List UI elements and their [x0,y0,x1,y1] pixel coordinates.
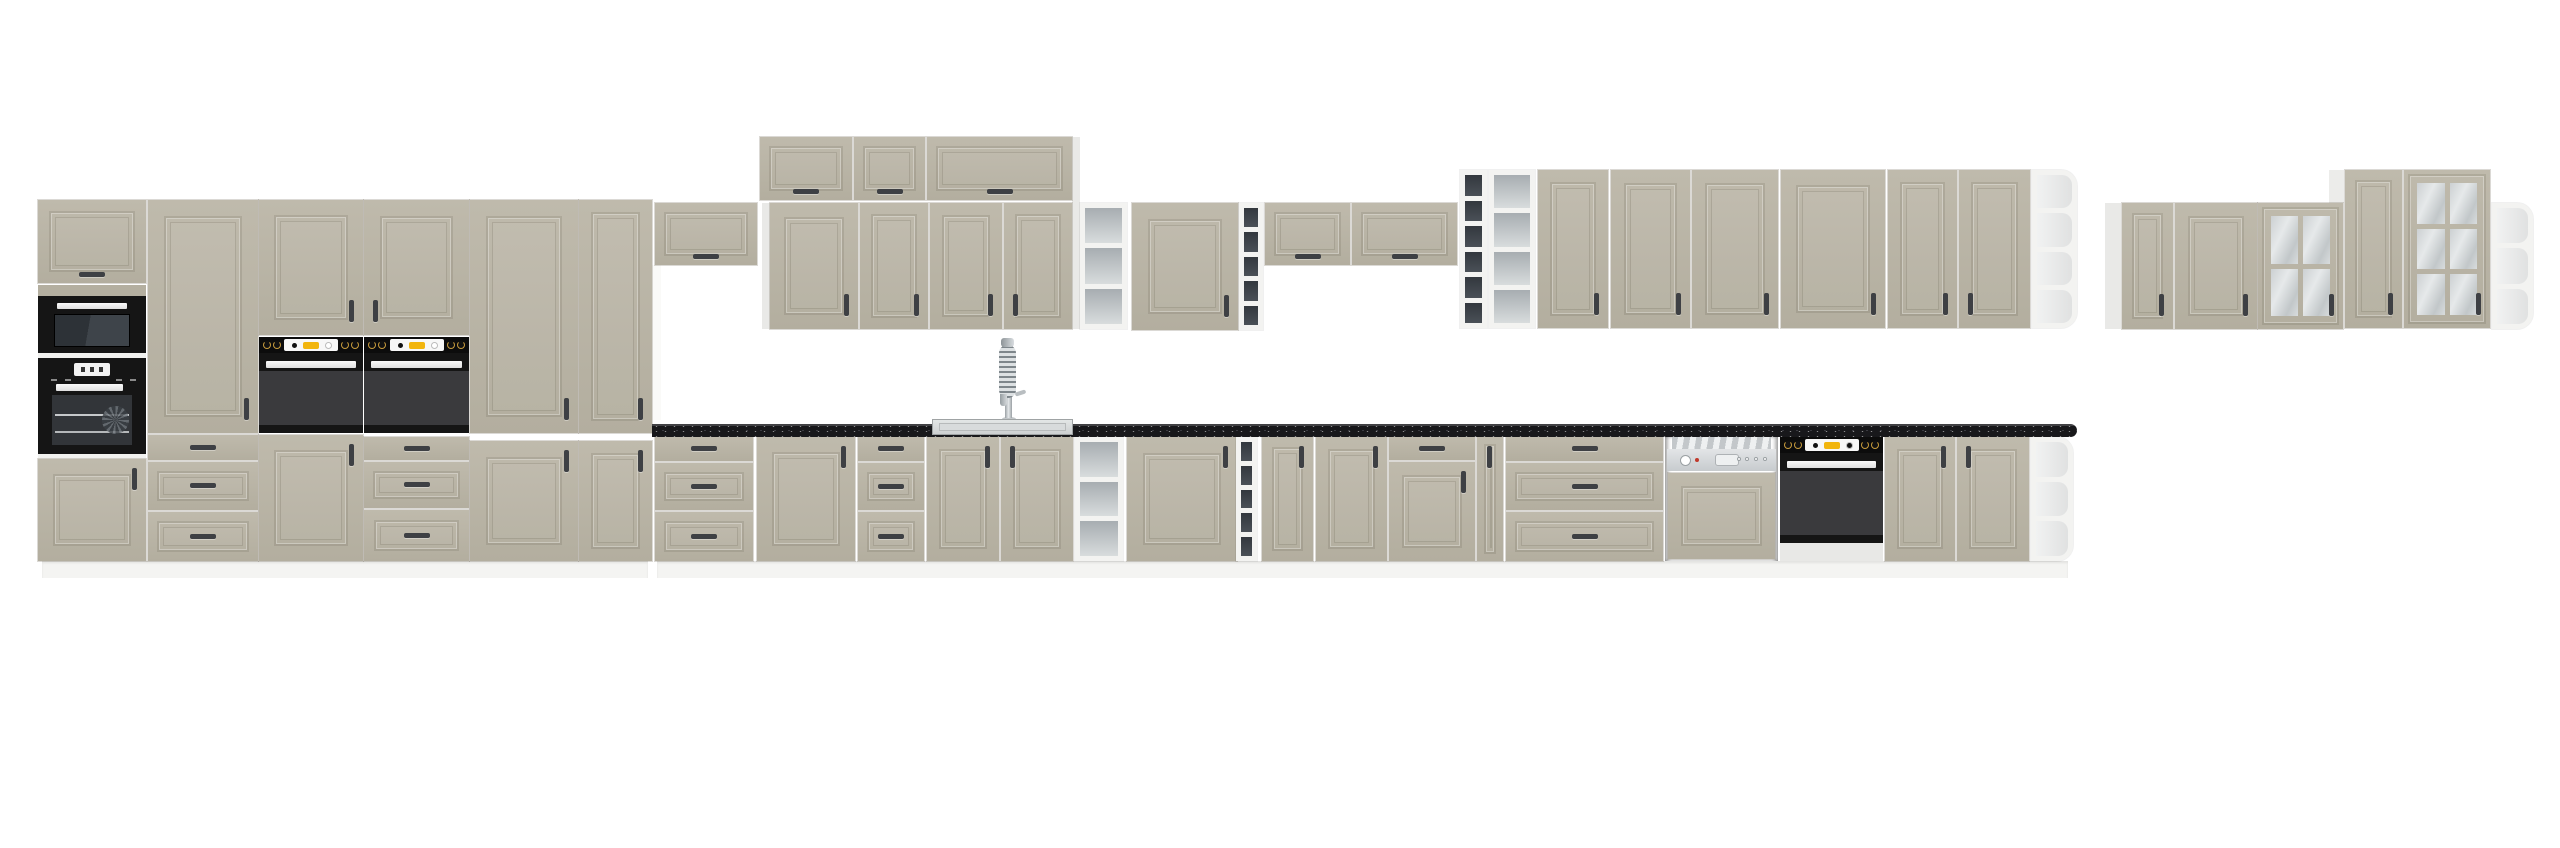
door-frame-inner [597,459,634,543]
base-drawer-over-door-door [1389,462,1475,561]
handle [1392,254,1418,259]
wall-bridge-cabinet-3 [1352,203,1457,265]
tall-b-drawer2 [148,462,258,510]
handle [404,533,430,538]
handle [190,483,216,488]
door-frame-inner [1802,191,1864,307]
base-drawers-1-drawer-3 [655,512,753,561]
handle [1013,294,1018,316]
right-wall-door-2 [2175,203,2257,329]
oven-display-panel [390,339,444,351]
handle [373,300,378,322]
door-frame-inner [945,455,981,543]
oven-knob [341,341,349,349]
door-frame-inner [2194,222,2238,310]
oven-icon-mark [65,379,71,381]
oven-handle-bar [1787,461,1876,468]
handle [349,300,354,322]
handle [190,534,216,539]
oven-knob [263,341,271,349]
handle [1572,446,1598,451]
door-frame-inner [942,152,1057,185]
oven-display-yellow [1824,442,1840,449]
dishwasher-power-button [1680,455,1691,466]
base-open-shelf-1-compartment-2 [1080,482,1118,517]
glass-pane [2303,216,2330,264]
wall-door-6 [1538,170,1608,328]
under-counter-oven [1780,437,1883,543]
side-panel-stack-right [1072,137,1080,329]
base-door-2 [1127,437,1237,561]
right-wall-tall-door [2345,170,2402,328]
door-frame-inner [1977,188,2012,310]
right-glass-cabinet-2 [2404,170,2490,328]
faucet-spring-coil [999,345,1016,398]
door-frame-inner [492,463,556,539]
base-door-3 [1262,437,1313,561]
tall-b-drawer1 [148,435,258,460]
tall-d-oven [364,337,469,433]
faucet-spout-tip [1000,394,1007,406]
handle [1299,446,1304,468]
wall-wine-shelf-2-compartment-6 [1465,303,1482,324]
handle [564,450,569,472]
door-frame-inner [869,152,910,185]
handle [1224,295,1229,317]
handle [564,398,569,420]
door-frame-inner [1687,492,1755,540]
handle [988,294,993,316]
wall-top-stack-2 [854,137,925,200]
sink [932,419,1073,435]
door-frame-inner [1408,481,1456,542]
door-frame-inner [492,222,556,411]
wall-door-11 [1959,170,2030,328]
handle [878,446,904,451]
base-open-shelf-1-compartment-3 [1080,521,1118,556]
handle [987,189,1013,194]
base-drawers-2-drawer-1 [858,437,924,461]
oven-display-dot-left [398,343,403,348]
handle [638,450,643,472]
oven-knob [447,341,455,349]
dishwasher-dot [1754,457,1758,461]
base-open-shelf-1-compartment-1 [1080,442,1118,477]
handle [1764,293,1769,315]
wall-wine-shelf-1-compartment-2 [1244,232,1258,251]
base-end-shelf-compartment-1 [2036,442,2068,477]
door-frame-inner [1975,455,2011,543]
right-end-shelf-compartment-3 [2497,289,2528,324]
handle [1594,293,1599,315]
wall-door-5 [1132,203,1238,330]
oven-door-window [1780,471,1883,535]
base-end-shelf [2031,437,2073,561]
wall-wine-shelf-2 [1460,170,1487,328]
side-panel-tall-glass-top [2329,170,2344,203]
door-frame-inner [670,218,742,250]
dishwasher-handle-pocket [1715,454,1739,466]
door-frame-inner [778,458,834,540]
tall-b-drawer3 [148,512,258,561]
handle [132,468,137,490]
wall-door-2 [860,203,928,329]
kitchen-set-product-image [0,0,2560,848]
oven-display-mark [90,367,94,372]
glass-pane [2417,183,2445,224]
dishwasher-dot [1745,457,1749,461]
wall-open-shelf-2-compartment-4 [1494,290,1530,323]
dishwasher [1665,437,1778,561]
oven-door-window [259,371,363,425]
oven-control-strip [259,337,363,353]
wall-end-shelf [2032,170,2077,328]
oven-knob [1861,441,1869,449]
oven-fan [102,406,129,434]
oven-icon-mark [116,379,122,381]
tall-e-lower-door [470,441,578,561]
oven-display-dot-left [292,343,297,348]
handle [404,482,430,487]
oven-handle-bar [56,384,123,391]
wall-wine-shelf-2-compartment-5 [1465,277,1482,298]
oven-knob [1871,441,1879,449]
oven-knob [351,341,359,349]
wall-wine-shelf-2-compartment-3 [1465,226,1482,247]
handle [2329,294,2334,316]
base-drawers-2-drawer-2 [858,463,924,510]
door-frame-inner [280,221,342,314]
base-drawers-2-drawer-3 [858,512,924,561]
base-wine-shelf-compartment-1 [1241,442,1252,461]
wall-open-shelf-1-compartment-3 [1085,289,1122,324]
door-frame-inner [1367,218,1442,250]
under-counter-oven-lower-filler [1780,543,1883,561]
tall-a-lower-door [38,459,146,561]
wall-wine-shelf-1 [1239,203,1263,330]
door-frame-inner [1149,459,1215,539]
handle [1010,446,1015,468]
handle [638,398,643,420]
oven-knob [1794,441,1802,449]
tall-d-upper-door [364,200,469,335]
tall-b-door [148,200,258,433]
wall-door-9 [1781,170,1885,328]
wall-wine-shelf-1-compartment-1 [1244,208,1258,227]
wall-wine-shelf-2-compartment-2 [1465,201,1482,222]
oven-display-mark [81,367,85,372]
handle [244,398,249,420]
wall-wine-shelf-1-compartment-4 [1244,281,1258,300]
base-drawers-3-drawer-2 [1506,463,1663,510]
handle [2388,293,2393,315]
sink-base-door-left [927,437,999,561]
oven-knob [1784,441,1792,449]
oven-display-panel [74,363,111,376]
plinth-left-run [42,561,648,578]
tall-a-oven-display [38,358,146,454]
base-wine-shelf-compartment-3 [1241,490,1252,509]
handle [1943,293,1948,315]
tall-c-oven [259,337,363,433]
oven-knob [457,341,465,349]
door-frame-inner [948,221,984,311]
door-frame-inner [877,220,911,312]
door-frame-inner [1280,218,1335,250]
oven-display-dot-left [1813,443,1818,448]
door-frame-inner [1906,188,1939,310]
base-wine-shelf-compartment-5 [1241,537,1252,556]
oven-handle-bar [371,361,461,368]
oven-icon-mark [130,379,136,381]
handle [691,484,717,489]
base-drawers-3-drawer-3 [1506,512,1663,561]
glass-pane [2450,229,2478,270]
wall-open-shelf-2-compartment-2 [1494,213,1530,246]
handle [1295,254,1321,259]
tall-d-drawer2 [364,462,469,508]
handle [1871,293,1876,315]
handle [1676,293,1681,315]
base-wine-shelf [1236,437,1257,561]
tall-a-microwave [38,296,146,353]
handle [1968,293,1973,315]
handle [1572,484,1598,489]
dishwasher-indicator [1695,458,1699,462]
oven-knob [378,341,386,349]
tall-d-drawer1 [364,437,469,460]
handle [349,444,354,466]
base-end-shelf-compartment-2 [2036,482,2068,517]
wall-door-3 [930,203,1002,329]
faucet-side-lever [1015,389,1027,396]
tall-a-flip-door [38,200,146,283]
base-wine-shelf-compartment-4 [1241,513,1252,532]
handle [1461,471,1466,493]
base-wine-shelf-compartment-2 [1241,466,1252,485]
wall-end-shelf-compartment-1 [2037,175,2072,208]
oven-display-dot-right [431,342,438,349]
door-frame-inner [1278,453,1297,545]
glass-pane [2417,229,2445,270]
oven-icon-mark [51,379,57,381]
handle [404,446,430,451]
wall-door-10 [1888,170,1957,328]
wall-door-8 [1692,170,1778,328]
door-frame-inner [1711,189,1759,309]
handle [985,446,990,468]
door-frame-inner [1630,189,1671,309]
base-end-shelf-compartment-3 [2036,521,2068,556]
handle [2476,293,2481,315]
oven-display-panel [284,339,338,351]
wall-bridge-cabinet-1 [655,203,757,265]
tall-e-door [470,200,578,433]
base-drawers-3-drawer-1 [1506,437,1663,461]
handle [1419,446,1445,451]
glass-pane [2271,269,2298,317]
door-frame-inner [1903,455,1937,543]
side-panel-niche [652,265,661,420]
microwave-handle-bar [57,303,126,309]
door-frame-inner [1154,225,1216,308]
handle [1966,446,1971,468]
wall-wine-shelf-1-compartment-3 [1244,257,1258,276]
handle [691,534,717,539]
dishwasher-control-panel [1667,449,1775,471]
wall-open-shelf-1 [1080,203,1127,329]
oven-door-window [52,395,132,445]
oven-display-yellow [303,342,319,349]
handle [691,446,717,451]
microwave-window [54,314,130,347]
wall-wine-shelf-2-compartment-1 [1465,175,1482,196]
door-frame-inner [2138,219,2157,313]
wall-top-stack-3 [927,137,1072,200]
handle [693,254,719,259]
wall-end-shelf-compartment-3 [2037,252,2072,285]
base-drawers-1-drawer-1 [655,437,753,461]
handle [878,534,904,539]
wall-open-shelf-2 [1489,170,1535,328]
door-frame-inner [1556,188,1590,310]
glass-pane [2450,274,2478,315]
tall-f-lower-door [579,441,652,561]
oven-display-dot-right [325,342,332,349]
handle [878,484,904,489]
base-drawers-1-drawer-2 [655,463,753,510]
oven-door-window [364,371,469,425]
glass-pane [2450,183,2478,224]
wall-open-shelf-1-compartment-1 [1085,208,1122,243]
tall-c-upper-door [259,200,363,335]
oven-display-dot-right [1846,442,1853,449]
handle [2243,294,2248,316]
dishwasher-dot [1763,457,1767,461]
right-wall-door-1 [2122,203,2173,329]
plinth-base-run [657,561,2068,578]
right-glass-cabinet-1 [2258,203,2343,329]
wall-open-shelf-2-compartment-1 [1494,175,1530,208]
handle [841,446,846,468]
dishwasher-door [1668,473,1774,559]
oven-display-yellow [409,342,425,349]
side-panel-right-group [2105,203,2121,329]
tall-c-lower-door [259,435,363,561]
oven-handle-bar [266,361,355,368]
right-end-shelf-compartment-1 [2497,208,2528,243]
wall-wine-shelf-1-compartment-5 [1244,306,1258,325]
handle [79,272,105,277]
base-narrow-door [1477,437,1503,561]
handle [190,445,216,450]
door-frame-inner [59,480,125,540]
tall-f-door [579,200,652,433]
handle [844,294,849,316]
oven-display-mark [99,367,103,372]
faucet-top-cap [1001,338,1014,347]
base-door-1 [757,437,855,561]
door-frame-inner [597,218,634,415]
wall-wine-shelf-2-compartment-4 [1465,252,1482,273]
handle [793,189,819,194]
wall-open-shelf-1-compartment-2 [1085,248,1122,283]
wall-open-shelf-2-compartment-3 [1494,252,1530,285]
wall-door-1 [770,203,858,329]
glass-pane [2271,216,2298,264]
countertop [652,424,2077,437]
oven-control-strip [1780,437,1883,453]
counter-top-edge [652,424,2077,426]
handle [2159,294,2164,316]
oven-knob [368,341,376,349]
dishwasher-dot [1737,457,1741,461]
tall-d-drawer3 [364,510,469,561]
door-frame-inner [386,222,447,313]
wall-top-stack-1 [760,137,852,200]
door-frame-inner [1019,455,1055,543]
handle [1572,534,1598,539]
right-end-shelf [2492,203,2533,329]
oven-knob [273,341,281,349]
tall-a-band [38,285,146,296]
right-end-shelf-compartment-2 [2497,248,2528,283]
handle [1487,446,1492,468]
handle [1223,446,1228,468]
door-frame-inner [1021,220,1055,312]
glass-pane [2417,274,2445,315]
glass-pane [2303,269,2330,317]
wall-end-shelf-compartment-4 [2037,290,2072,323]
oven-display-panel [1805,439,1859,451]
dishwasher-tub [1672,437,1771,449]
sink-basin-line [939,423,1066,431]
wall-door-4 [1004,203,1072,329]
wall-end-shelf-compartment-2 [2037,213,2072,246]
handle [914,294,919,316]
sink-base-door-right [1001,437,1073,561]
door-frame-inner [790,223,838,309]
side-panel-wall-left [762,203,770,329]
base-door-6 [1957,437,2029,561]
handle [1941,446,1946,468]
oven-control-strip [364,337,469,353]
door-frame-inner [55,217,129,266]
base-open-shelf-1 [1075,437,1123,561]
wall-bridge-cabinet-2 [1265,203,1350,265]
base-door-4 [1316,437,1387,561]
wall-door-7 [1611,170,1690,328]
door-frame-inner [2361,186,2386,312]
door-frame-inner [170,222,236,411]
door-frame-inner [280,456,342,540]
base-door-5 [1885,437,1955,561]
door-frame-inner [775,152,837,185]
handle [877,189,903,194]
handle [1373,446,1378,468]
base-drawer-over-door-drawer [1389,437,1475,460]
door-frame-inner [1334,455,1369,543]
